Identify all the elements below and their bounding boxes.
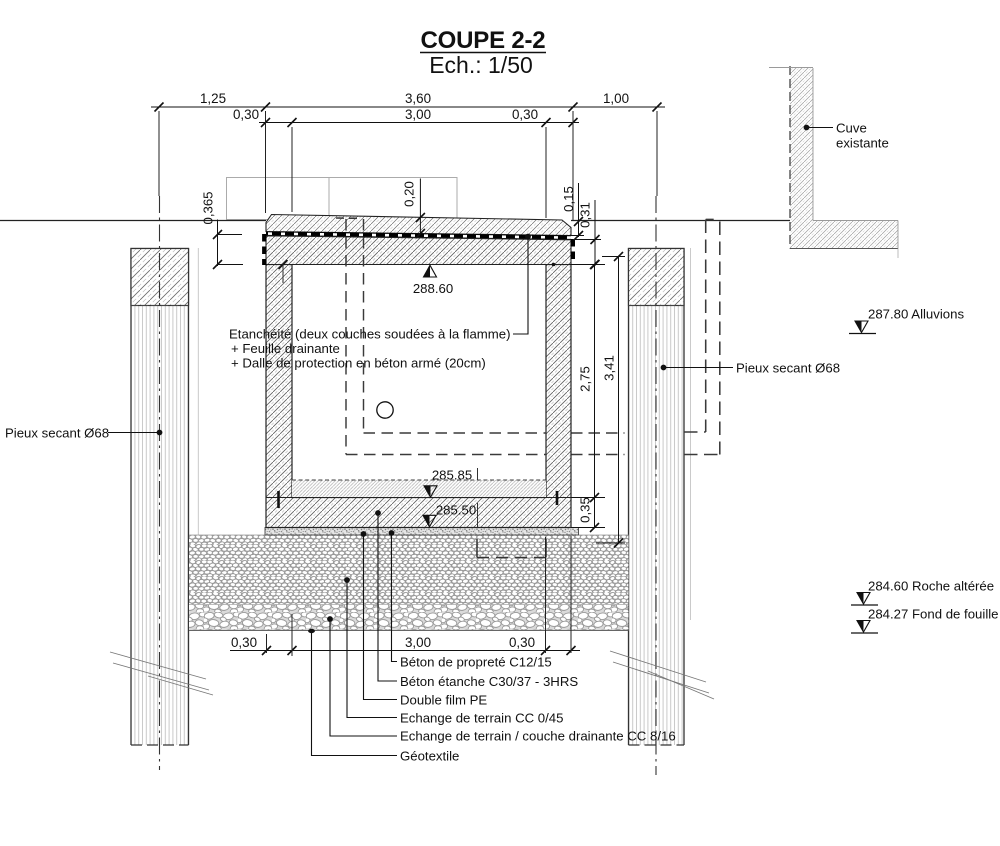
svg-text:0,30: 0,30 bbox=[509, 635, 535, 650]
svg-text:Géotextile: Géotextile bbox=[400, 749, 459, 764]
svg-text:Echange de terrain CC 0/45: Echange de terrain CC 0/45 bbox=[400, 711, 563, 726]
svg-text:Pieux secant Ø68: Pieux secant Ø68 bbox=[5, 426, 109, 441]
svg-text:Echange de terrain / couche dr: Echange de terrain / couche drainante CC… bbox=[400, 729, 676, 744]
svg-text:Cuve: Cuve bbox=[836, 121, 867, 136]
svg-text:Béton de propreté C12/15: Béton de propreté C12/15 bbox=[400, 655, 552, 670]
svg-text:0,31: 0,31 bbox=[578, 202, 593, 228]
svg-text:Double film PE: Double film PE bbox=[400, 693, 487, 708]
svg-text:3,60: 3,60 bbox=[405, 91, 431, 106]
svg-text:Béton étanche C30/37 - 3HRS: Béton étanche C30/37 - 3HRS bbox=[400, 674, 578, 689]
svg-text:1,00: 1,00 bbox=[603, 91, 629, 106]
svg-text:Etanchéité (deux couches soudé: Etanchéité (deux couches soudées à la fl… bbox=[229, 327, 511, 342]
svg-text:284.27 Fond de fouille: 284.27 Fond de fouille bbox=[868, 607, 999, 622]
svg-text:1,25: 1,25 bbox=[200, 91, 226, 106]
svg-text:3,41: 3,41 bbox=[602, 355, 617, 381]
svg-text:285.50: 285.50 bbox=[436, 503, 476, 518]
svg-text:2,75: 2,75 bbox=[578, 366, 593, 392]
svg-text:285.85: 285.85 bbox=[432, 468, 472, 483]
svg-text:0,30: 0,30 bbox=[231, 635, 257, 650]
svg-text:0,15: 0,15 bbox=[561, 186, 576, 212]
svg-text:288.60: 288.60 bbox=[413, 281, 453, 296]
svg-text:+ Dalle de protection en béton: + Dalle de protection en béton armé (20c… bbox=[231, 356, 486, 371]
svg-text:0,20: 0,20 bbox=[402, 181, 417, 207]
svg-text:0,30: 0,30 bbox=[512, 107, 538, 122]
svg-text:+ Feuille drainante: + Feuille drainante bbox=[231, 341, 340, 356]
svg-text:3,00: 3,00 bbox=[405, 635, 431, 650]
svg-text:COUPE 2-2: COUPE 2-2 bbox=[421, 27, 546, 54]
svg-text:0,365: 0,365 bbox=[201, 191, 216, 224]
svg-text:0,30: 0,30 bbox=[233, 107, 259, 122]
svg-text:284.60 Roche altérée: 284.60 Roche altérée bbox=[868, 579, 994, 594]
svg-text:Pieux secant Ø68: Pieux secant Ø68 bbox=[736, 361, 840, 376]
svg-text:0,35: 0,35 bbox=[578, 497, 593, 523]
svg-text:287.80 Alluvions: 287.80 Alluvions bbox=[868, 307, 964, 322]
svg-text:3,00: 3,00 bbox=[405, 107, 431, 122]
svg-text:existante: existante bbox=[836, 136, 889, 151]
svg-text:Ech.: 1/50: Ech.: 1/50 bbox=[429, 52, 533, 78]
